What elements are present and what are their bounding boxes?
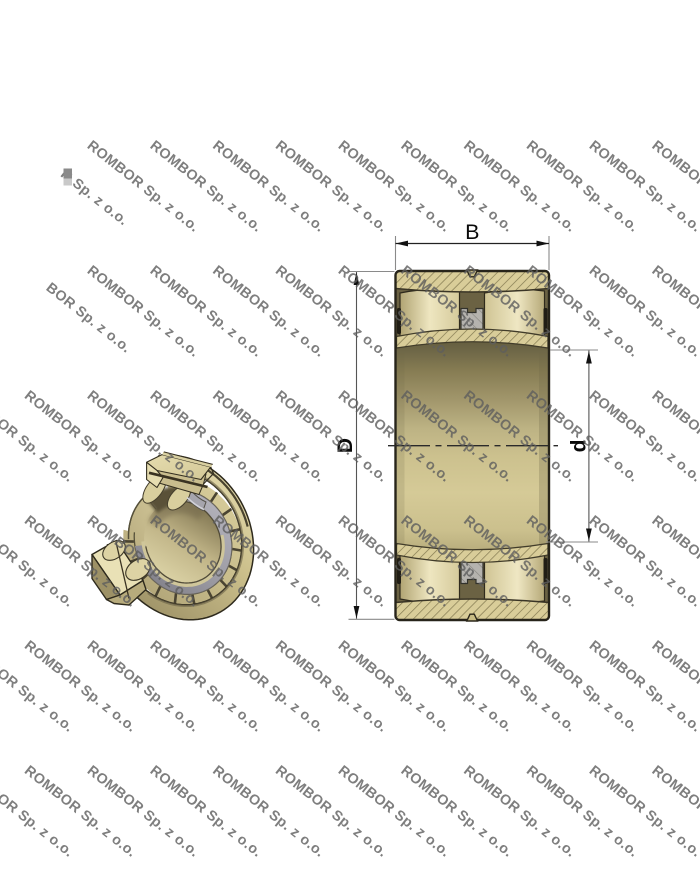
svg-text:B: B — [465, 220, 479, 244]
